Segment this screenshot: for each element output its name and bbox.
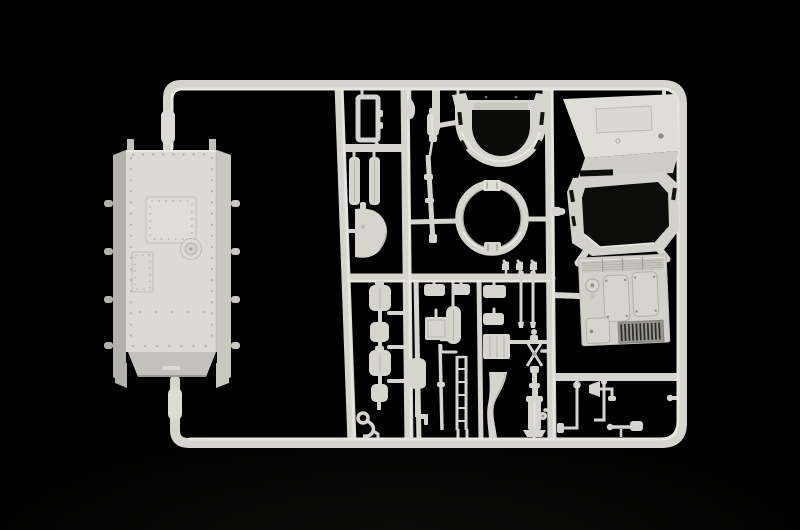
cab-octagon-opening bbox=[582, 182, 669, 247]
turret-shell-hole-right bbox=[515, 96, 518, 99]
sub-vertical-b bbox=[479, 278, 481, 443]
hull-rail-right bbox=[217, 150, 231, 386]
hull-plate bbox=[126, 150, 217, 352]
hull-round-cap bbox=[181, 239, 202, 260]
hull-bottom-plate bbox=[128, 352, 216, 377]
turret-shell-ledge bbox=[474, 103, 528, 111]
deck-grille bbox=[618, 320, 664, 343]
cab-roof-port bbox=[658, 133, 663, 138]
turret-ring-tab-top bbox=[483, 180, 501, 191]
hull-tub-part bbox=[104, 139, 240, 388]
ribbed-plate-part bbox=[483, 334, 510, 359]
canteen-part bbox=[446, 306, 461, 344]
cab-dark-slot bbox=[580, 169, 613, 176]
hull-rail-left bbox=[113, 150, 126, 386]
runner-knob bbox=[551, 207, 565, 216]
turret-ring-tab-bottom bbox=[484, 242, 501, 253]
engine-deck-part bbox=[578, 254, 670, 346]
cab-roof-inset bbox=[596, 106, 652, 133]
turret-shell-hole-left bbox=[485, 96, 488, 99]
sprue-canvas bbox=[0, 0, 800, 530]
deck-hatch-b bbox=[632, 272, 659, 317]
hull-panel-small bbox=[132, 252, 153, 292]
hull-hatch-square bbox=[146, 197, 196, 243]
deck-hatch-small bbox=[586, 318, 610, 344]
square-plate-part bbox=[425, 317, 448, 340]
hull-bottom-slot bbox=[163, 366, 180, 370]
deck-hatch-a bbox=[603, 275, 630, 322]
sprue-photo bbox=[0, 0, 800, 530]
